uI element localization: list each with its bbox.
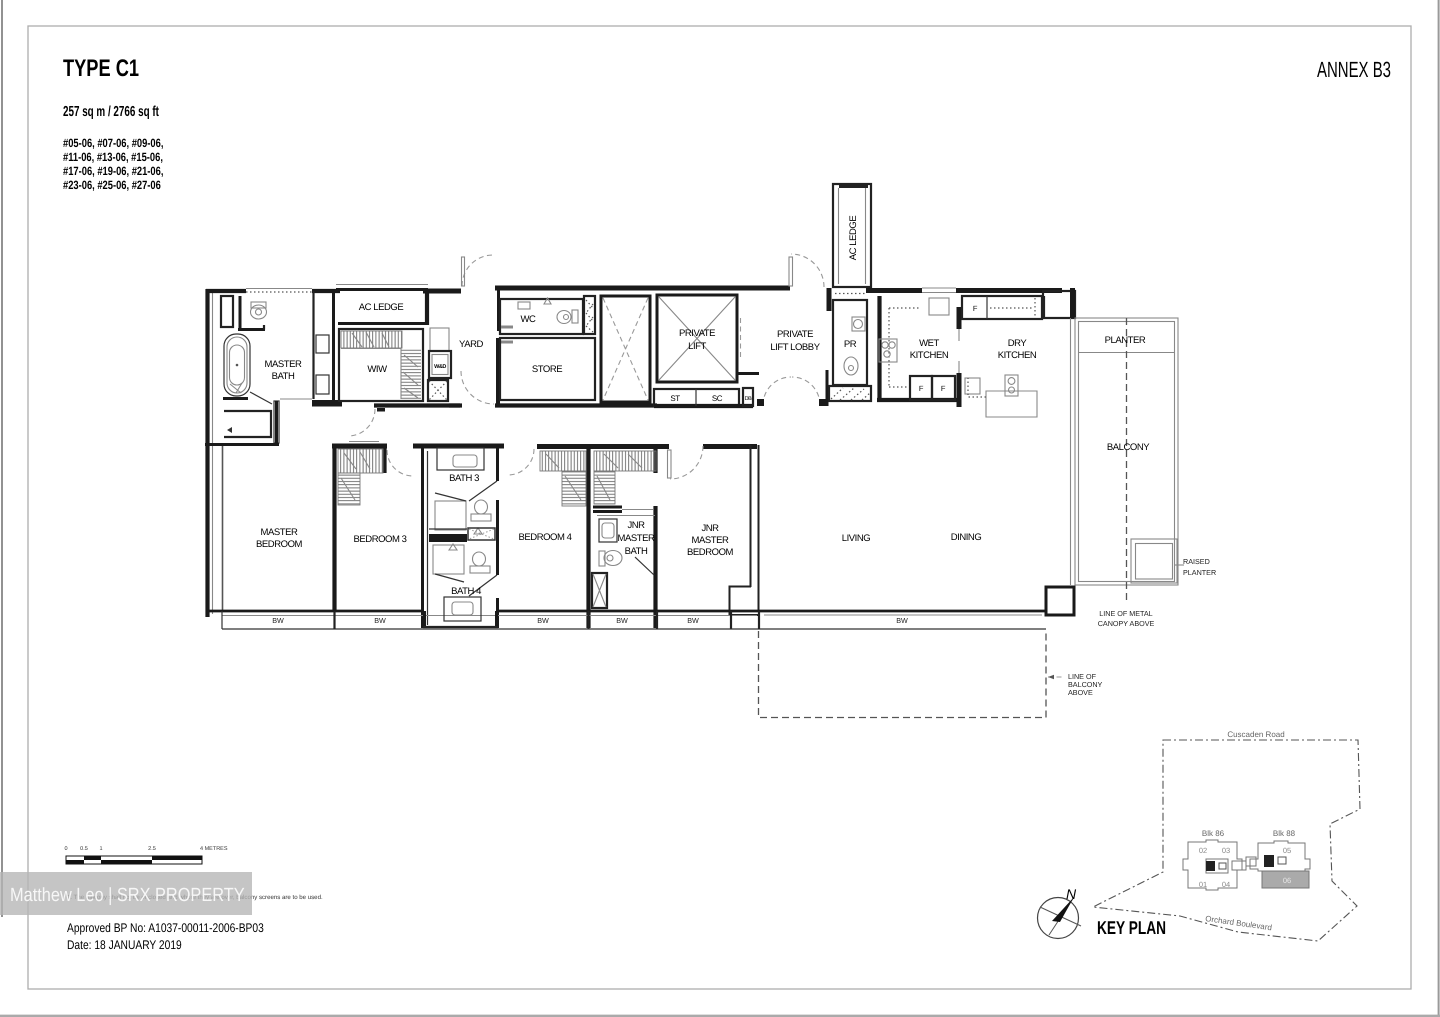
svg-text:MASTER: MASTER bbox=[265, 359, 302, 370]
svg-text:05: 05 bbox=[1283, 846, 1291, 855]
svg-text:KEY PLAN: KEY PLAN bbox=[1097, 917, 1166, 938]
svg-text:PR: PR bbox=[844, 339, 857, 350]
svg-text:KITCHEN: KITCHEN bbox=[998, 350, 1037, 361]
svg-text:BW: BW bbox=[374, 616, 386, 625]
svg-text:BATH 3: BATH 3 bbox=[449, 473, 479, 484]
svg-text:WIW: WIW bbox=[367, 364, 387, 375]
svg-text:0: 0 bbox=[64, 846, 67, 852]
svg-text:4 METRES: 4 METRES bbox=[200, 846, 228, 852]
svg-text:257 sq m / 2766 sq ft: 257 sq m / 2766 sq ft bbox=[63, 104, 159, 120]
svg-text:MASTER: MASTER bbox=[618, 533, 655, 544]
svg-text:TYPE C1: TYPE C1 bbox=[63, 55, 139, 82]
svg-text:WC: WC bbox=[521, 314, 537, 325]
svg-text:0.5: 0.5 bbox=[80, 846, 88, 852]
svg-text:YARD: YARD bbox=[459, 339, 483, 350]
svg-text:LIFT: LIFT bbox=[688, 341, 706, 352]
svg-text:LINE OF METAL: LINE OF METAL bbox=[1099, 609, 1152, 618]
svg-text:BATH: BATH bbox=[625, 546, 648, 557]
svg-text:ANNEX B3: ANNEX B3 bbox=[1317, 57, 1391, 82]
svg-text:WET: WET bbox=[919, 338, 939, 349]
svg-text:RAISED: RAISED bbox=[1183, 557, 1210, 566]
svg-text:CANOPY ABOVE: CANOPY ABOVE bbox=[1098, 619, 1155, 628]
svg-text:Matthew Leo | SRX PROPERTY: Matthew Leo | SRX PROPERTY bbox=[10, 885, 245, 906]
svg-text:BATH: BATH bbox=[272, 371, 295, 382]
svg-text:DRY: DRY bbox=[1008, 338, 1028, 349]
svg-text:PLANTER: PLANTER bbox=[1183, 568, 1216, 577]
svg-text:PLANTER: PLANTER bbox=[1105, 335, 1146, 346]
svg-text:06: 06 bbox=[1283, 876, 1291, 885]
svg-text:BW: BW bbox=[687, 616, 699, 625]
svg-text:MASTER: MASTER bbox=[261, 527, 298, 538]
svg-text:BEDROOM: BEDROOM bbox=[687, 547, 733, 558]
svg-text:BEDROOM 3: BEDROOM 3 bbox=[354, 534, 407, 545]
svg-text:Blk 86: Blk 86 bbox=[1202, 829, 1225, 838]
svg-text:#17-06, #19-06, #21-06,: #17-06, #19-06, #21-06, bbox=[63, 164, 163, 178]
svg-text:JNR: JNR bbox=[701, 523, 719, 534]
svg-text:LIFT LOBBY: LIFT LOBBY bbox=[770, 342, 820, 353]
svg-text:DINING: DINING bbox=[951, 532, 982, 543]
svg-text:BW: BW bbox=[272, 616, 284, 625]
svg-text:1: 1 bbox=[99, 846, 102, 852]
svg-text:Approved BP No: A1037-00011-20: Approved BP No: A1037-00011-2006-BP03 bbox=[67, 921, 264, 935]
svg-text:Cuscaden Road: Cuscaden Road bbox=[1227, 730, 1284, 739]
svg-text:DB: DB bbox=[745, 396, 753, 402]
svg-text:PRIVATE: PRIVATE bbox=[777, 329, 813, 340]
svg-text:BATH 4: BATH 4 bbox=[451, 586, 481, 597]
svg-text:BW: BW bbox=[896, 616, 908, 625]
svg-text:#11-06, #13-06, #15-06,: #11-06, #13-06, #15-06, bbox=[63, 150, 163, 164]
svg-text:SC: SC bbox=[712, 394, 723, 403]
svg-text:AC LEDGE: AC LEDGE bbox=[359, 302, 404, 313]
svg-text:ABOVE: ABOVE bbox=[1068, 688, 1093, 697]
svg-text:JNR: JNR bbox=[627, 520, 645, 531]
svg-text:Blk 88: Blk 88 bbox=[1273, 829, 1296, 838]
svg-text:KITCHEN: KITCHEN bbox=[910, 350, 949, 361]
svg-text:W&D: W&D bbox=[434, 364, 446, 370]
svg-text:BW: BW bbox=[616, 616, 628, 625]
svg-text:Date: 18 JANUARY 2019: Date: 18 JANUARY 2019 bbox=[67, 938, 182, 952]
svg-text:#23-06, #25-06, #27-06: #23-06, #25-06, #27-06 bbox=[63, 178, 161, 192]
svg-text:02: 02 bbox=[1199, 846, 1207, 855]
svg-text:03: 03 bbox=[1222, 846, 1230, 855]
svg-text:AC LEDGE: AC LEDGE bbox=[848, 216, 859, 261]
svg-text:LIVING: LIVING bbox=[842, 533, 871, 544]
svg-text:MASTER: MASTER bbox=[692, 535, 729, 546]
svg-text:PRIVATE: PRIVATE bbox=[679, 328, 715, 339]
svg-text:STORE: STORE bbox=[532, 364, 562, 375]
svg-text:ST: ST bbox=[670, 394, 680, 403]
svg-text:N: N bbox=[1066, 886, 1077, 902]
svg-text:2.5: 2.5 bbox=[148, 846, 156, 852]
svg-text:BW: BW bbox=[537, 616, 549, 625]
svg-text:BEDROOM: BEDROOM bbox=[256, 539, 302, 550]
svg-text:BALCONY: BALCONY bbox=[1107, 442, 1150, 453]
svg-text:BEDROOM 4: BEDROOM 4 bbox=[519, 532, 572, 543]
svg-text:#05-06, #07-06, #09-06,: #05-06, #07-06, #09-06, bbox=[63, 136, 163, 150]
